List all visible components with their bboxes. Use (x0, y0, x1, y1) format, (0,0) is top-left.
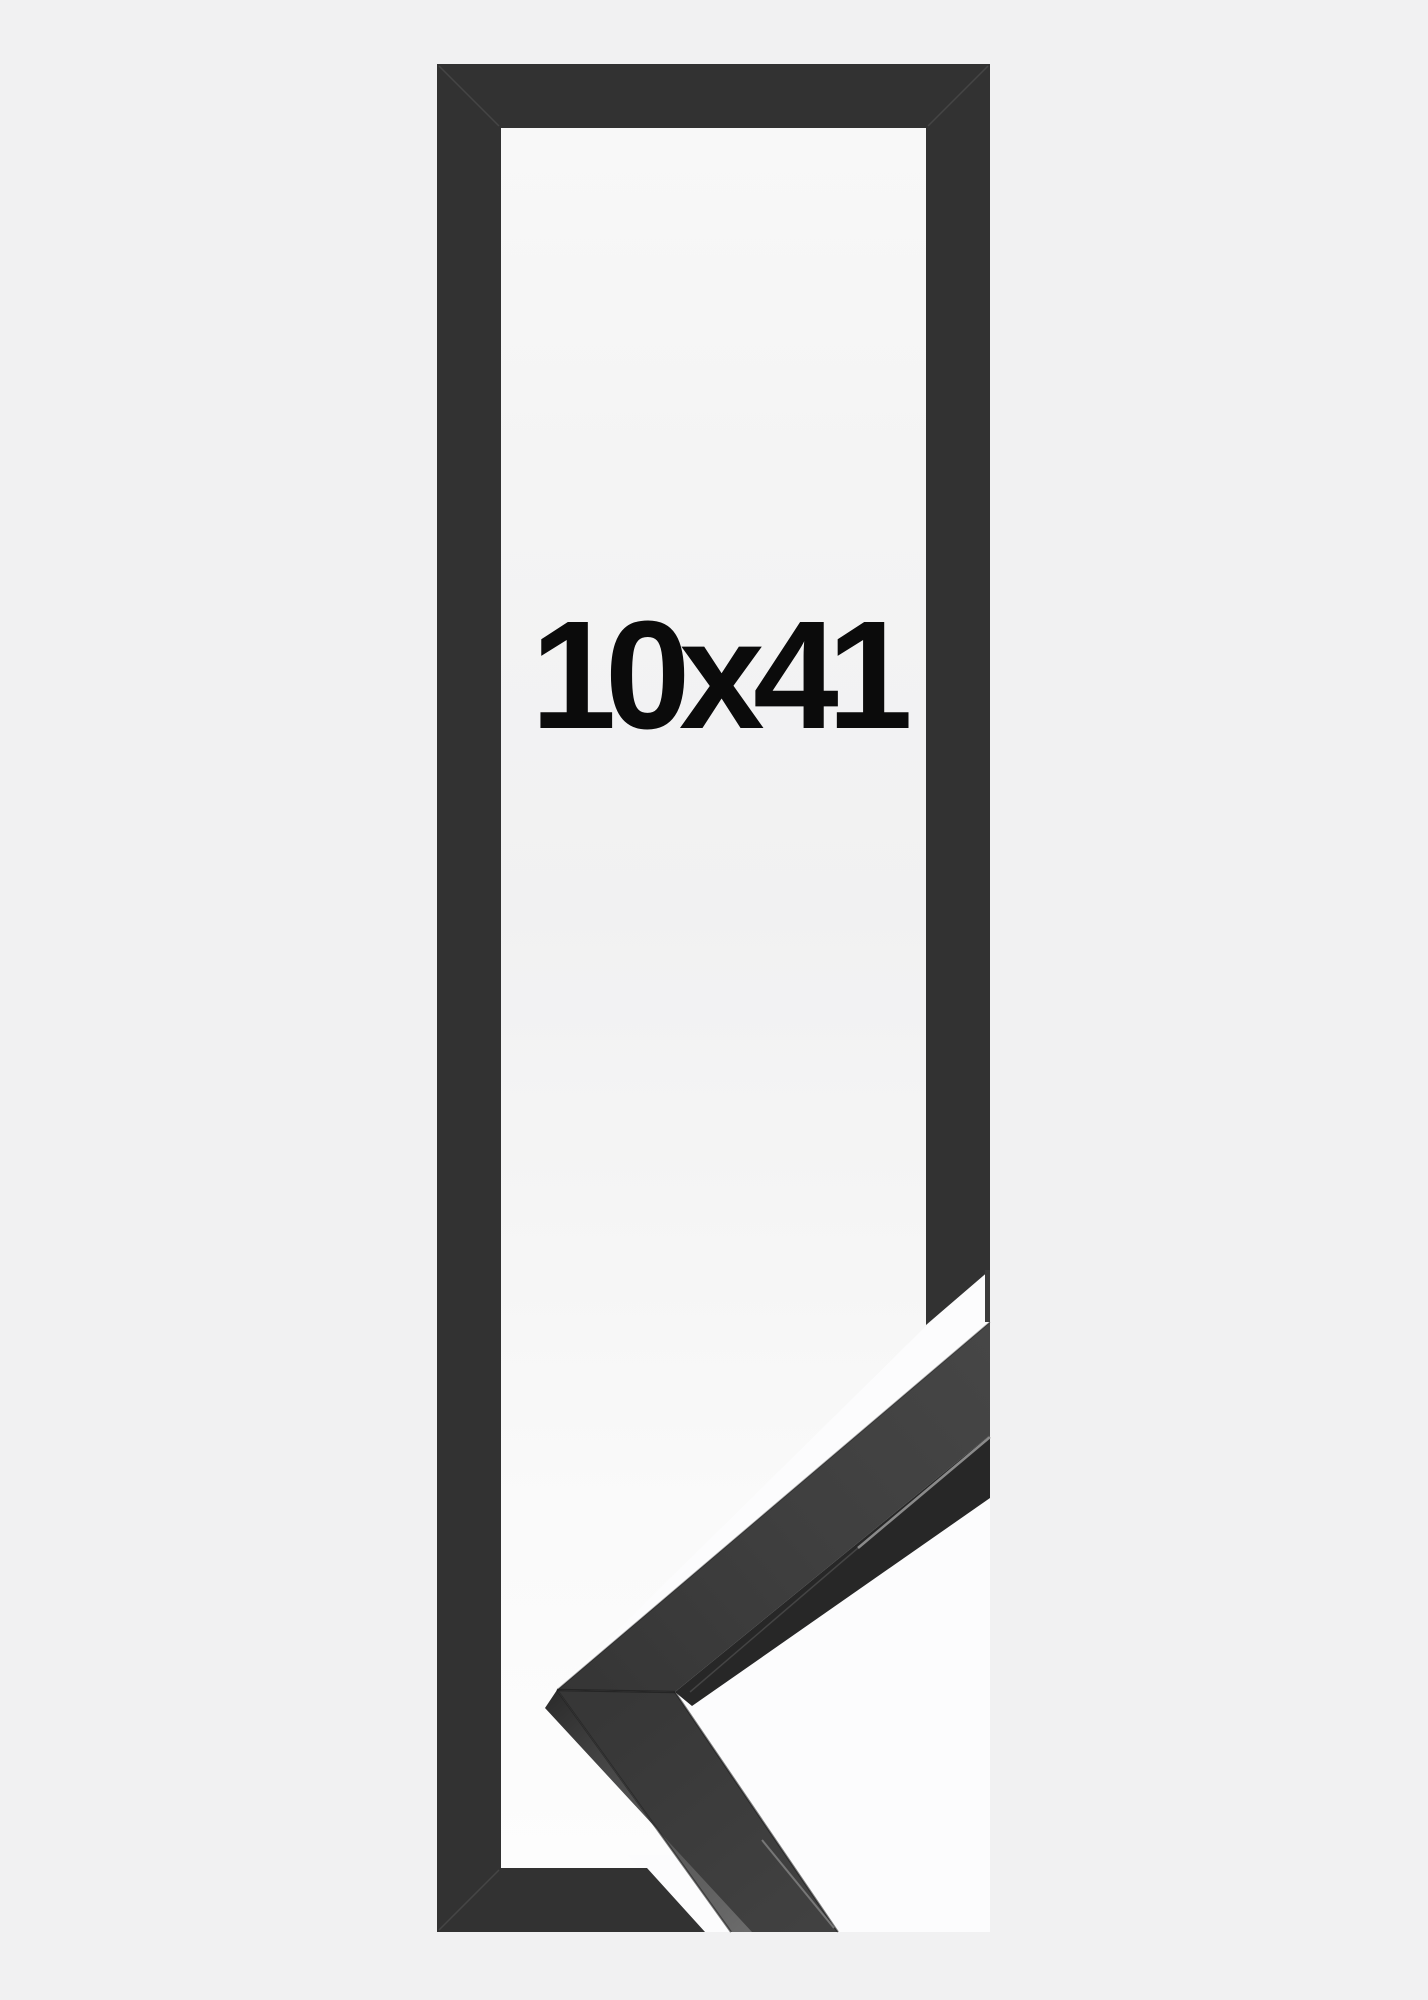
right-bar-cut-side-face (985, 1270, 990, 1322)
frame-left-bar (437, 64, 501, 1932)
frame-top-bar (437, 64, 990, 128)
size-label: 10x41 (531, 598, 902, 752)
frame-illustration (0, 0, 1428, 2000)
product-image: 10x41 (0, 0, 1428, 2000)
frame-right-bar (926, 64, 990, 1325)
